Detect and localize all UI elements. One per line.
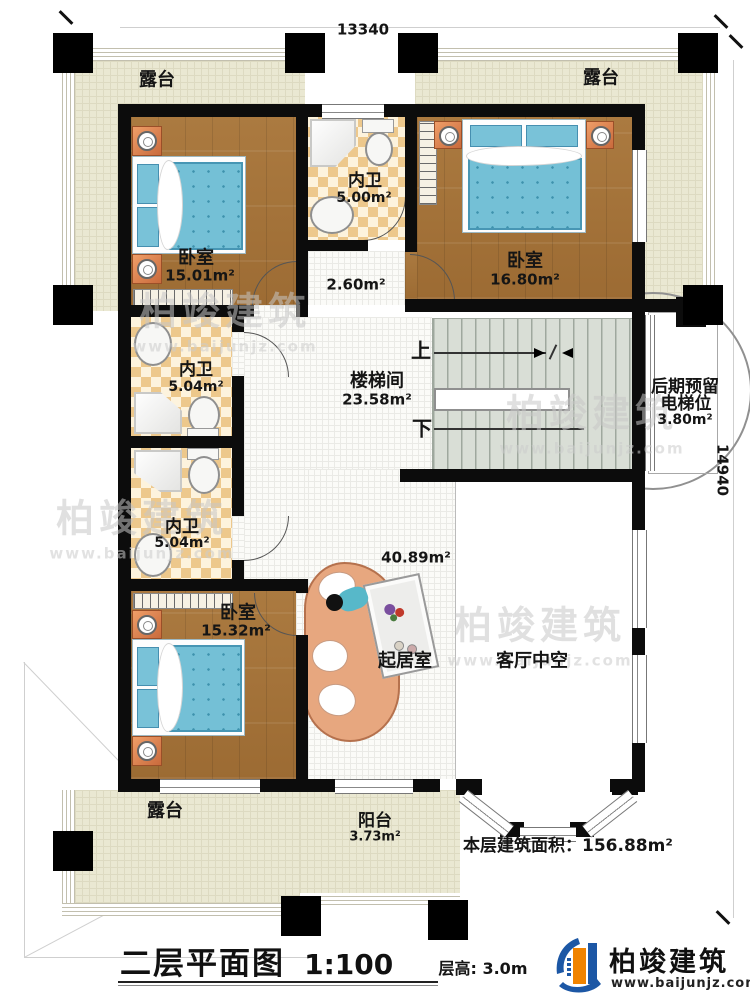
wall <box>118 305 254 317</box>
bath2-area: 5.04m² <box>168 379 223 395</box>
bedroom2-area: 16.80m² <box>490 271 560 288</box>
wall <box>296 104 308 317</box>
flower-decor <box>389 614 397 622</box>
dimension-tick <box>729 34 744 49</box>
terrace-bottom-left <box>75 790 300 903</box>
title-block: 二层平面图 1:100 <box>120 938 393 983</box>
roof-line <box>24 662 25 958</box>
dimension-right: 14940 <box>713 444 730 496</box>
floor-height: 层高: 3.0m <box>439 960 528 978</box>
stair-handrail <box>434 388 570 411</box>
void-name: 客厅中空 <box>496 652 568 673</box>
bedroom1-area: 15.01m² <box>165 267 235 284</box>
brand-url: www.baijunjz.com <box>611 976 750 991</box>
bath3-area: 5.04m² <box>154 535 209 551</box>
pillow <box>470 125 522 147</box>
bed <box>462 119 586 233</box>
wall <box>308 240 368 251</box>
wall <box>118 104 131 792</box>
floor-area-summary: 本层建筑面积：156.88m² <box>463 837 673 857</box>
stair-direction-line-up <box>434 352 546 354</box>
column <box>398 33 438 73</box>
door-gap-floor <box>232 332 244 376</box>
wall <box>118 436 244 448</box>
title-underline <box>118 981 438 983</box>
stair-arrow <box>562 348 573 358</box>
plan-title: 二层平面图 <box>120 946 285 982</box>
stair-direction-line-down <box>434 428 584 430</box>
terrace-railing <box>62 48 306 61</box>
dimension-line-top <box>120 27 720 28</box>
window <box>632 655 647 743</box>
bay-window <box>582 790 637 838</box>
wall <box>118 579 308 591</box>
bay-window <box>459 790 514 838</box>
brand-name: 柏竣建筑 <box>609 940 729 979</box>
column <box>53 285 93 325</box>
wall <box>232 317 244 332</box>
terrace-railing <box>62 903 312 916</box>
column <box>53 33 93 73</box>
pillow <box>526 125 578 147</box>
pillow <box>137 647 159 686</box>
brand-logo: 柏竣建筑 www.baijunjz.com <box>553 934 748 1000</box>
stairs-down-label: 下 <box>412 418 432 441</box>
wall <box>296 635 308 792</box>
wardrobe <box>133 593 233 609</box>
bedroom3-area: 15.32m² <box>201 622 271 639</box>
lamp-icon <box>137 259 157 279</box>
dimension-tick <box>59 10 74 25</box>
lamp-icon <box>439 126 459 146</box>
terrace-railing <box>415 48 715 61</box>
bath1-area: 5.00m² <box>336 190 391 206</box>
nightstand <box>586 121 614 149</box>
lamp-icon <box>137 615 157 635</box>
toilet-bowl <box>365 132 393 166</box>
sliding-door <box>335 779 413 794</box>
dimension-top: 13340 <box>337 21 389 38</box>
wall <box>400 469 645 482</box>
floor-area-value: 156.88m² <box>582 836 673 856</box>
elevator-area: 3.80m² <box>657 412 712 428</box>
hall-area: 2.60m² <box>326 276 385 293</box>
stairwell-area: 23.58m² <box>342 391 412 408</box>
terrace-label: 露台 <box>139 71 175 92</box>
nightstand <box>132 610 162 639</box>
window <box>632 150 647 242</box>
lamp-icon <box>137 741 157 761</box>
wall <box>405 104 417 252</box>
pillow <box>137 207 159 247</box>
living-name: 起居室 <box>378 652 432 673</box>
brand-logo-icon <box>553 936 603 996</box>
nightstand <box>434 121 462 149</box>
floor-area-label: 本层建筑面积： <box>463 836 582 856</box>
void-floor <box>455 469 633 779</box>
door-gap-floor <box>252 305 296 317</box>
column <box>683 285 723 325</box>
column <box>53 831 93 871</box>
bedroom2-name: 卧室 <box>507 252 543 273</box>
column <box>678 33 718 73</box>
dimension-tick <box>716 910 731 925</box>
terrace-railing <box>62 48 75 310</box>
lamp-icon <box>591 126 611 146</box>
column <box>285 33 325 73</box>
nightstand <box>132 126 162 156</box>
bath1-name: 内卫 <box>348 172 382 192</box>
mattress <box>468 158 582 230</box>
wall <box>405 299 645 312</box>
person-head <box>326 594 343 611</box>
plan-scale: 1:100 <box>304 948 393 981</box>
bath2-name: 内卫 <box>179 361 213 381</box>
nightstand <box>132 736 162 766</box>
living-area: 40.89m² <box>381 549 451 566</box>
balcony-area: 3.73m² <box>349 831 400 846</box>
floor-plan: 柏竣建筑 www.baijunjz.com 柏竣建筑 www.baijunjz.… <box>0 0 750 1005</box>
column <box>281 896 321 936</box>
pillow <box>137 164 159 204</box>
window <box>632 530 647 628</box>
bed <box>132 639 245 736</box>
wall <box>296 579 308 593</box>
stairs-up-label: 上 <box>411 340 431 363</box>
bed <box>132 156 246 254</box>
wardrobe <box>133 289 233 306</box>
door-gap-floor <box>232 516 244 560</box>
terrace-railing <box>702 48 715 300</box>
lamp-icon <box>137 131 157 151</box>
title-underline <box>118 985 438 986</box>
pillow <box>137 689 159 728</box>
nightstand <box>132 254 162 284</box>
window <box>322 104 384 119</box>
stair-arrow <box>534 348 545 358</box>
terrace-label: 露台 <box>147 802 183 823</box>
terrace-label: 露台 <box>583 69 619 90</box>
sink <box>134 322 172 366</box>
window <box>160 779 260 794</box>
stairwell-name: 楼梯间 <box>350 372 404 393</box>
sofa-cushion <box>312 640 348 672</box>
column <box>428 900 468 940</box>
toilet-bowl <box>188 456 220 494</box>
toilet <box>362 119 394 133</box>
